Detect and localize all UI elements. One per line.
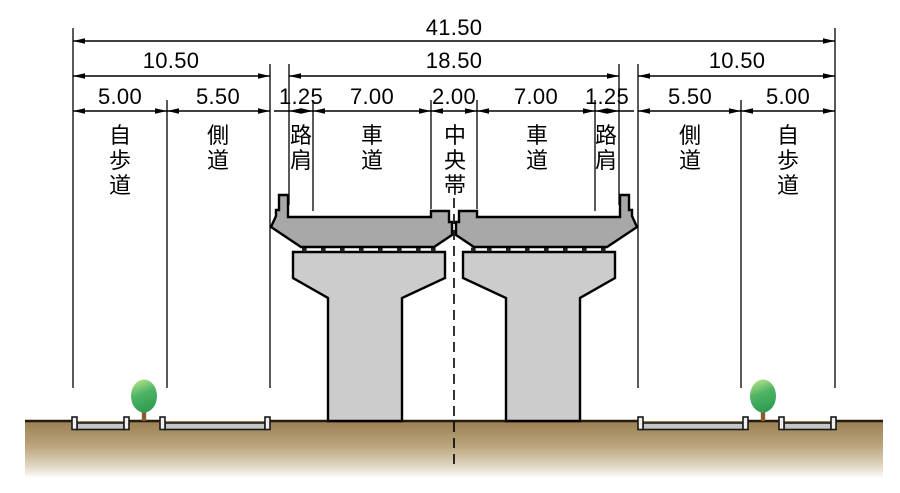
tree-crown [750, 380, 776, 413]
road-slab [77, 423, 124, 430]
curb [779, 417, 784, 430]
zone-label-roadway-left: 車道 [359, 123, 385, 173]
zone-label-median: 中央帯 [442, 123, 468, 198]
road-slab [643, 423, 743, 430]
tree-crown [131, 380, 157, 413]
dim-seg-4: 7.00 [350, 86, 394, 108]
curb [265, 417, 270, 430]
zone-label-shoulder-right: 路肩 [593, 123, 619, 173]
road-slab [165, 423, 265, 430]
tree-left [131, 380, 157, 422]
bearing [563, 248, 568, 252]
bearing [506, 248, 511, 252]
pier-left [293, 252, 445, 421]
bearing [431, 248, 436, 252]
bearing [378, 248, 383, 252]
diagram-drawing [0, 0, 900, 493]
bearing [487, 248, 492, 252]
zone-label-shoulder-left: 路肩 [288, 123, 314, 173]
zone-label-sideroad-right: 側道 [677, 123, 703, 173]
bearing [544, 248, 549, 252]
bearing [340, 248, 345, 252]
deck-left [271, 195, 452, 247]
bearing [397, 248, 402, 252]
curb [831, 417, 836, 430]
pier-right [463, 252, 615, 421]
curb [72, 417, 77, 430]
road-slab [784, 423, 831, 430]
dim-seg-3: 1.25 [279, 86, 323, 108]
tree-right [750, 380, 776, 422]
dim-seg-1: 5.00 [98, 86, 142, 108]
deck-right [456, 195, 637, 247]
bearing [601, 248, 606, 252]
bearing [321, 248, 326, 252]
dim-right-group: 10.50 [709, 50, 766, 72]
zone-label-roadway-right: 車道 [524, 123, 550, 173]
dim-seg-2: 5.50 [196, 86, 240, 108]
curb [743, 417, 748, 430]
bearing [471, 248, 476, 252]
bearing [525, 248, 530, 252]
dim-seg-5: 2.00 [432, 86, 476, 108]
dim-seg-9: 5.00 [766, 86, 810, 108]
curb [124, 417, 129, 430]
dim-total: 41.50 [426, 17, 483, 39]
bearing [302, 248, 307, 252]
dim-seg-6: 7.00 [514, 86, 558, 108]
zone-label-sideroad-left: 側道 [205, 123, 231, 173]
bearing [359, 248, 364, 252]
bearing [416, 248, 421, 252]
cross-section-diagram: 41.50 10.50 18.50 10.50 5.00 5.50 1.25 7… [0, 0, 900, 493]
dim-left-group: 10.50 [143, 50, 200, 72]
dim-seg-7: 1.25 [585, 86, 629, 108]
dim-center-group: 18.50 [426, 50, 483, 72]
zone-label-pedestrian-left: 自歩道 [107, 123, 133, 198]
dim-seg-8: 5.50 [668, 86, 712, 108]
curb [638, 417, 643, 430]
bearing [582, 248, 587, 252]
curb [160, 417, 165, 430]
zone-label-pedestrian-right: 自歩道 [775, 123, 801, 198]
